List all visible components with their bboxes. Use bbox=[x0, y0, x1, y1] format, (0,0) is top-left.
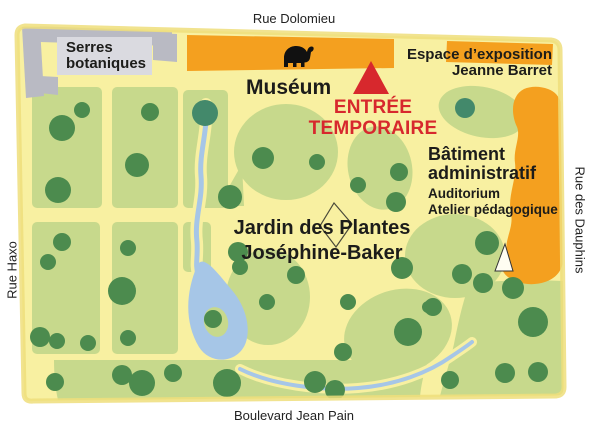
batiment-line1: Bâtiment bbox=[428, 145, 558, 164]
tree-symbol bbox=[386, 192, 406, 212]
tree-symbol bbox=[129, 370, 155, 396]
tree-symbol bbox=[495, 363, 515, 383]
tree-symbol bbox=[350, 177, 366, 193]
tree-symbol bbox=[452, 264, 472, 284]
tree-symbol bbox=[125, 153, 149, 177]
tree-symbol bbox=[108, 277, 136, 305]
museum-label: Muséum bbox=[246, 76, 331, 100]
tree-symbol bbox=[424, 298, 442, 316]
street-label-boulevard-jean-pain: Boulevard Jean Pain bbox=[194, 409, 394, 424]
tree-symbol bbox=[30, 327, 50, 347]
tree-symbol bbox=[49, 115, 75, 141]
tree-symbol bbox=[340, 294, 356, 310]
street-label-rue-dolomieu: Rue Dolomieu bbox=[194, 12, 394, 27]
tree-symbol bbox=[40, 254, 56, 270]
tree-symbol bbox=[528, 362, 548, 382]
tree-symbol bbox=[164, 364, 182, 382]
tree-symbol bbox=[502, 277, 524, 299]
tree-symbol bbox=[475, 231, 499, 255]
espace-exposition-label: Espace d’exposition Jeanne Barret bbox=[407, 47, 552, 79]
map-stage: Rue Dolomieu Rue Haxo Rue des Dauphins B… bbox=[0, 0, 600, 439]
park-line2: Joséphine-Baker bbox=[226, 241, 418, 266]
tree-symbol bbox=[49, 333, 65, 349]
tree-symbol bbox=[455, 98, 475, 118]
street-label-rue-des-dauphins: Rue des Dauphins bbox=[572, 167, 587, 274]
serres-line2: botaniques bbox=[66, 56, 146, 72]
park-line1: Jardin des Plantes bbox=[226, 216, 418, 241]
entree-line1: ENTRÉE bbox=[302, 97, 444, 118]
batiment-administratif-label: Bâtiment administratif Auditorium Atelie… bbox=[428, 145, 558, 217]
tree-symbol bbox=[141, 103, 159, 121]
tree-symbol bbox=[53, 233, 71, 251]
tree-symbol bbox=[304, 371, 326, 393]
park-name-label: Jardin des Plantes Joséphine-Baker bbox=[226, 216, 418, 266]
tree-symbol bbox=[192, 100, 218, 126]
tree-symbol bbox=[45, 177, 71, 203]
tree-symbol bbox=[74, 102, 90, 118]
tree-symbol bbox=[112, 365, 132, 385]
tree-symbol bbox=[287, 266, 305, 284]
batiment-sub2: Atelier pédagogique bbox=[428, 202, 558, 218]
tree-symbol bbox=[390, 163, 408, 181]
tree-symbol bbox=[80, 335, 96, 351]
espace-line1: Espace d’exposition bbox=[407, 47, 552, 63]
tree-symbol bbox=[518, 307, 548, 337]
batiment-sub1: Auditorium bbox=[428, 186, 558, 202]
tree-symbol bbox=[473, 273, 493, 293]
tree-symbol bbox=[120, 330, 136, 346]
tree-symbol bbox=[46, 373, 64, 391]
entree-line2: TEMPORAIRE bbox=[302, 118, 444, 139]
entree-temporaire-label: ENTRÉE TEMPORAIRE bbox=[302, 97, 444, 139]
tree-symbol bbox=[218, 185, 242, 209]
tree-symbol bbox=[259, 294, 275, 310]
tree-symbol bbox=[213, 369, 241, 397]
espace-line2: Jeanne Barret bbox=[407, 63, 552, 79]
tree-symbol bbox=[334, 343, 352, 361]
batiment-line2: administratif bbox=[428, 164, 558, 183]
serres-line1: Serres bbox=[66, 40, 146, 56]
tree-symbol bbox=[441, 371, 459, 389]
street-label-rue-haxo: Rue Haxo bbox=[6, 241, 21, 299]
tree-symbol bbox=[204, 310, 222, 328]
tree-symbol bbox=[394, 318, 422, 346]
tree-symbol bbox=[120, 240, 136, 256]
tree-symbol bbox=[309, 154, 325, 170]
serres-botaniques-label: Serres botaniques bbox=[57, 37, 152, 75]
tree-symbol bbox=[252, 147, 274, 169]
